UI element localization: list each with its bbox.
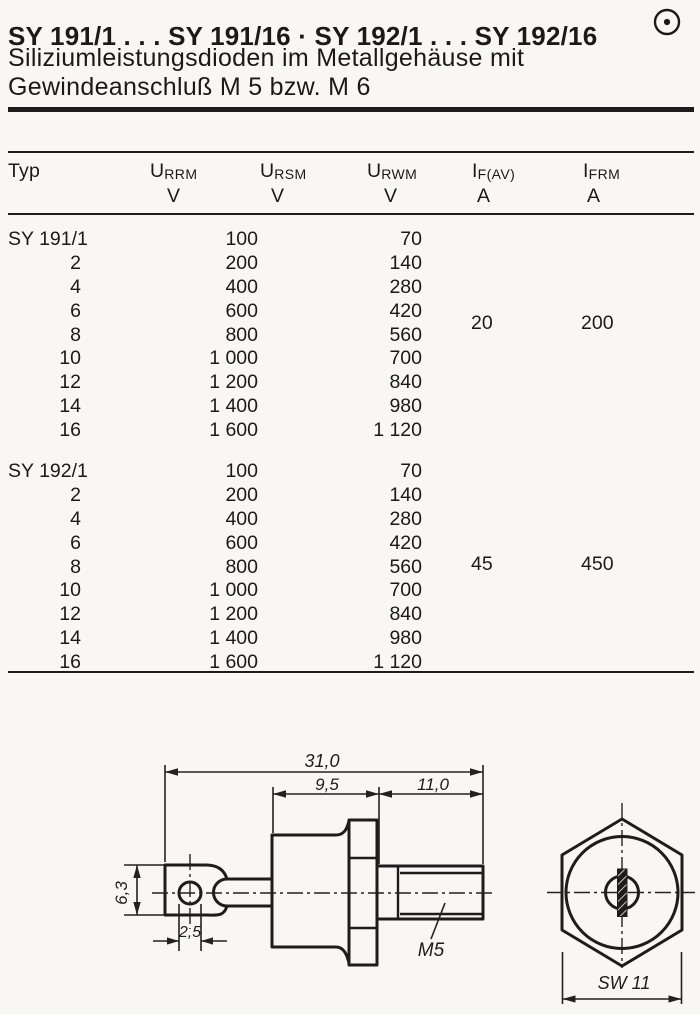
urwm-cell: 1 120	[258, 419, 422, 443]
subtitle-line-2: Gewindeanschluß M 5 bzw. M 6	[8, 73, 524, 102]
col-unit-ifrm: A	[587, 185, 600, 208]
ifrm-value-sy192: 450	[581, 552, 614, 576]
urwm-cell: 560	[258, 556, 422, 580]
col-header-ifrm: IFRM	[583, 160, 620, 183]
thread-size-label: M5	[418, 940, 445, 961]
urrm-cell: 1 400	[81, 395, 258, 419]
urrm-cell: 1 600	[81, 419, 258, 443]
urrm-cell: 800	[81, 556, 258, 580]
typ-cell: 14	[8, 395, 81, 419]
col-unit-ifav: A	[477, 185, 490, 208]
urrm-cell: 800	[81, 324, 258, 348]
subtitle-line-1: Siliziumleistungsdioden im Metallgehäuse…	[8, 44, 524, 73]
typ-cell: 6	[8, 300, 81, 324]
dim-overall-label: 31,0	[304, 751, 339, 771]
typ-cell: 16	[8, 651, 81, 675]
typ-cell: 10	[8, 579, 81, 603]
col-header-urrm: URRM	[150, 160, 197, 183]
dim-lug-width-label: 6,3	[112, 881, 131, 905]
urwm-cell: 140	[258, 252, 422, 276]
typ-cell: 4	[8, 276, 81, 300]
urrm-cell: 100	[81, 460, 258, 484]
page-subtitle: Siliziumleistungsdioden im Metallgehäuse…	[8, 44, 524, 102]
urwm-cell: 980	[258, 395, 422, 419]
solder-lug-end-on	[618, 869, 628, 917]
urrm-cell: 600	[81, 300, 258, 324]
urwm-cell: 560	[258, 324, 422, 348]
col-unit-urrm: V	[167, 185, 180, 208]
urwm-cell: 70	[258, 460, 422, 484]
front-view-drawing: SW 11	[540, 790, 700, 1014]
table-block-sy191: SY 191/110070220014044002806600420880056…	[8, 228, 422, 443]
typ-cell: 8	[8, 324, 81, 348]
col-header-ifav: IF(AV)	[472, 160, 515, 183]
diode-body	[272, 821, 349, 963]
urrm-cell: 1 400	[81, 627, 258, 651]
urwm-cell: 840	[258, 371, 422, 395]
datasheet-page: SY 191/1 . . . SY 191/16 · SY 192/1 . . …	[0, 0, 700, 1014]
urwm-cell: 420	[258, 300, 422, 324]
urwm-cell: 70	[258, 228, 422, 252]
table-block-sy192: SY 192/110070220014044002806600420880056…	[8, 460, 422, 675]
divider-table-top	[8, 151, 694, 153]
urrm-cell: 600	[81, 532, 258, 556]
urrm-cell: 100	[81, 228, 258, 252]
dim-body-label: 9,5	[315, 775, 339, 794]
ifav-value-sy192: 45	[471, 552, 493, 576]
ifav-value-sy191: 20	[471, 311, 493, 335]
divider-thick	[8, 107, 694, 112]
col-header-urwm: URWM	[367, 160, 417, 183]
side-view-drawing: 31,0 9,5 11,0 6,3 2,5 M5	[100, 740, 520, 1010]
urrm-cell: 400	[81, 276, 258, 300]
urwm-cell: 1 120	[258, 651, 422, 675]
typ-cell: 2	[8, 484, 81, 508]
divider-header-bottom	[8, 213, 694, 215]
urrm-cell: 1 600	[81, 651, 258, 675]
typ-cell: SY 192/1	[8, 460, 81, 484]
urrm-cell: 1 200	[81, 603, 258, 627]
ifrm-value-sy191: 200	[581, 311, 614, 335]
col-header-ursm: URSM	[260, 160, 307, 183]
dim-thread-label: 11,0	[417, 775, 449, 794]
col-header-typ: Typ	[8, 160, 40, 183]
typ-cell: 12	[8, 371, 81, 395]
urwm-cell: 280	[258, 276, 422, 300]
urwm-cell: 140	[258, 484, 422, 508]
circle-dot-icon	[652, 7, 682, 37]
urwm-cell: 840	[258, 603, 422, 627]
urwm-cell: 420	[258, 532, 422, 556]
urrm-cell: 400	[81, 508, 258, 532]
typ-cell: 8	[8, 556, 81, 580]
typ-cell: 2	[8, 252, 81, 276]
dim-hole-label: 2,5	[178, 924, 201, 941]
typ-cell: 4	[8, 508, 81, 532]
urwm-cell: 280	[258, 508, 422, 532]
typ-cell: 12	[8, 603, 81, 627]
urwm-cell: 980	[258, 627, 422, 651]
typ-cell: 14	[8, 627, 81, 651]
urwm-cell: 700	[258, 579, 422, 603]
urwm-cell: 700	[258, 347, 422, 371]
urrm-cell: 1 000	[81, 347, 258, 371]
typ-cell: SY 191/1	[8, 228, 81, 252]
typ-cell: 6	[8, 532, 81, 556]
urrm-cell: 200	[81, 252, 258, 276]
col-unit-ursm: V	[271, 185, 284, 208]
typ-cell: 16	[8, 419, 81, 443]
urrm-cell: 1 200	[81, 371, 258, 395]
col-unit-urwm: V	[384, 185, 397, 208]
typ-cell: 10	[8, 347, 81, 371]
solder-lug	[165, 865, 272, 915]
dim-across-flats-label: SW 11	[598, 973, 651, 993]
urrm-cell: 200	[81, 484, 258, 508]
urrm-cell: 1 000	[81, 579, 258, 603]
